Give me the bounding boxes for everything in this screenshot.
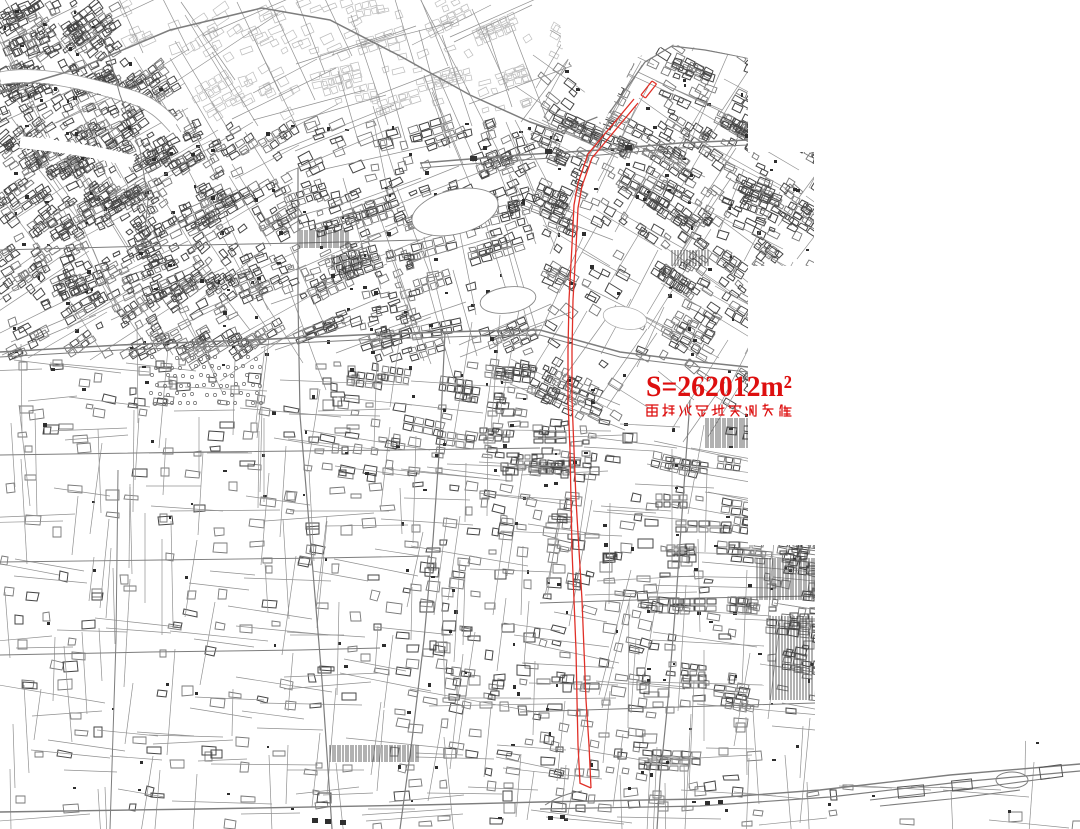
svg-text:S=262012m²: S=262012m²: [646, 370, 792, 403]
